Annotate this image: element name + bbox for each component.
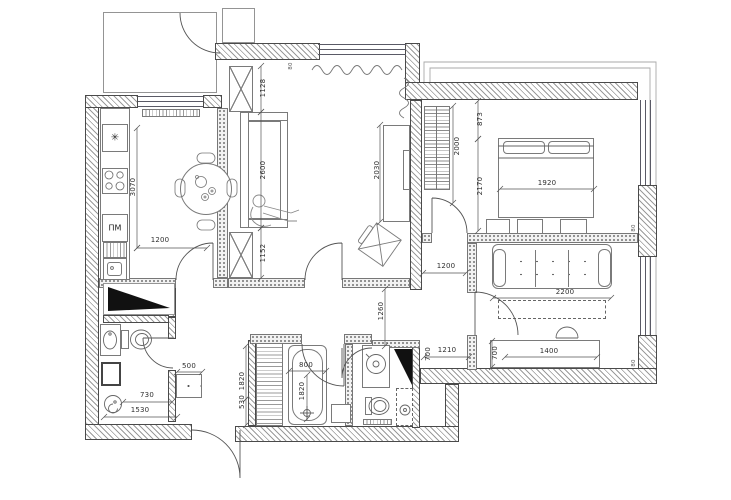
dimension-label: 1400: [540, 347, 559, 355]
bath2-door-arc: [342, 348, 372, 378]
chair-east: [227, 179, 237, 197]
dimension-label: 2600: [259, 161, 267, 180]
chair-south: [197, 220, 215, 230]
plate-1: [209, 188, 216, 195]
dimension-label: 873: [476, 112, 484, 126]
dimension-label: 80: [631, 359, 637, 366]
dimension-label: 700: [424, 347, 432, 361]
living-door-arc: [305, 243, 342, 280]
person-arms: [263, 206, 299, 221]
dimension-label: 80: [288, 62, 294, 69]
dimension-label: 1210: [438, 346, 457, 354]
dimension-label: 2030: [373, 161, 381, 180]
dimension-label: 80: [631, 224, 637, 231]
dimension-label: 2170: [476, 177, 484, 196]
dimension-label: 1820: [238, 372, 246, 391]
fridge-icon: ✳: [111, 133, 119, 144]
plate-2: [202, 194, 209, 201]
curtain-top: [312, 66, 402, 75]
wc-oval-sink: [104, 331, 117, 349]
fixtures: [104, 146, 595, 420]
dimension-label: 1530: [131, 406, 150, 414]
room2-door-arc: [475, 292, 518, 335]
kitchen-table-setting: [175, 153, 237, 230]
dimension-label: 1152: [259, 244, 267, 263]
person-head: [253, 195, 265, 207]
shaft-pipe: [400, 405, 410, 415]
dimension-label: 2200: [556, 288, 575, 296]
entrance-door-arc: [192, 430, 240, 478]
bath2-wedge: [394, 349, 412, 385]
balcony-door-arc: [180, 13, 220, 53]
bed-lines: [498, 146, 594, 158]
dimension-label: 730: [140, 391, 154, 399]
dimension-label: 1260: [377, 302, 385, 321]
dimension-label: 1200: [437, 262, 456, 270]
niche-wedge: [108, 287, 170, 311]
dimension-label: 700: [491, 346, 499, 360]
dimension-lines: [101, 63, 614, 428]
curtain-lines: [312, 66, 409, 119]
black-fill-shapes: [108, 287, 412, 385]
dimension-label: 530: [238, 395, 246, 409]
chair-west: [175, 179, 185, 197]
office-chair-back: [358, 225, 374, 244]
dimension-label: 1128: [259, 79, 267, 98]
plan-linework: [0, 0, 731, 500]
stove-burners: [105, 171, 124, 190]
dimension-label: 2000: [453, 137, 461, 156]
washing-machine-drum: [367, 355, 386, 374]
dimension-label: 1200: [151, 236, 170, 244]
dimension-label: 3070: [129, 178, 137, 197]
dishwasher-label: ПМ: [109, 224, 122, 233]
dimension-label: 1820: [298, 382, 306, 401]
room2-chair: [556, 327, 578, 338]
person-on-sofa: [251, 195, 299, 226]
dimension-label: 1920: [538, 179, 557, 187]
door-arcs: [143, 13, 518, 478]
kitchen-door-arc: [176, 243, 213, 280]
chair-north: [197, 153, 215, 163]
kitchen-faucet: [111, 267, 114, 270]
floor-plan: ✳ ПМ: [0, 0, 731, 500]
office-chair: [354, 220, 401, 266]
bedroom-door-arc: [432, 198, 467, 233]
dimension-label: 800: [299, 361, 313, 369]
dimension-label: 500: [182, 362, 196, 370]
curtain-side: [400, 78, 409, 118]
